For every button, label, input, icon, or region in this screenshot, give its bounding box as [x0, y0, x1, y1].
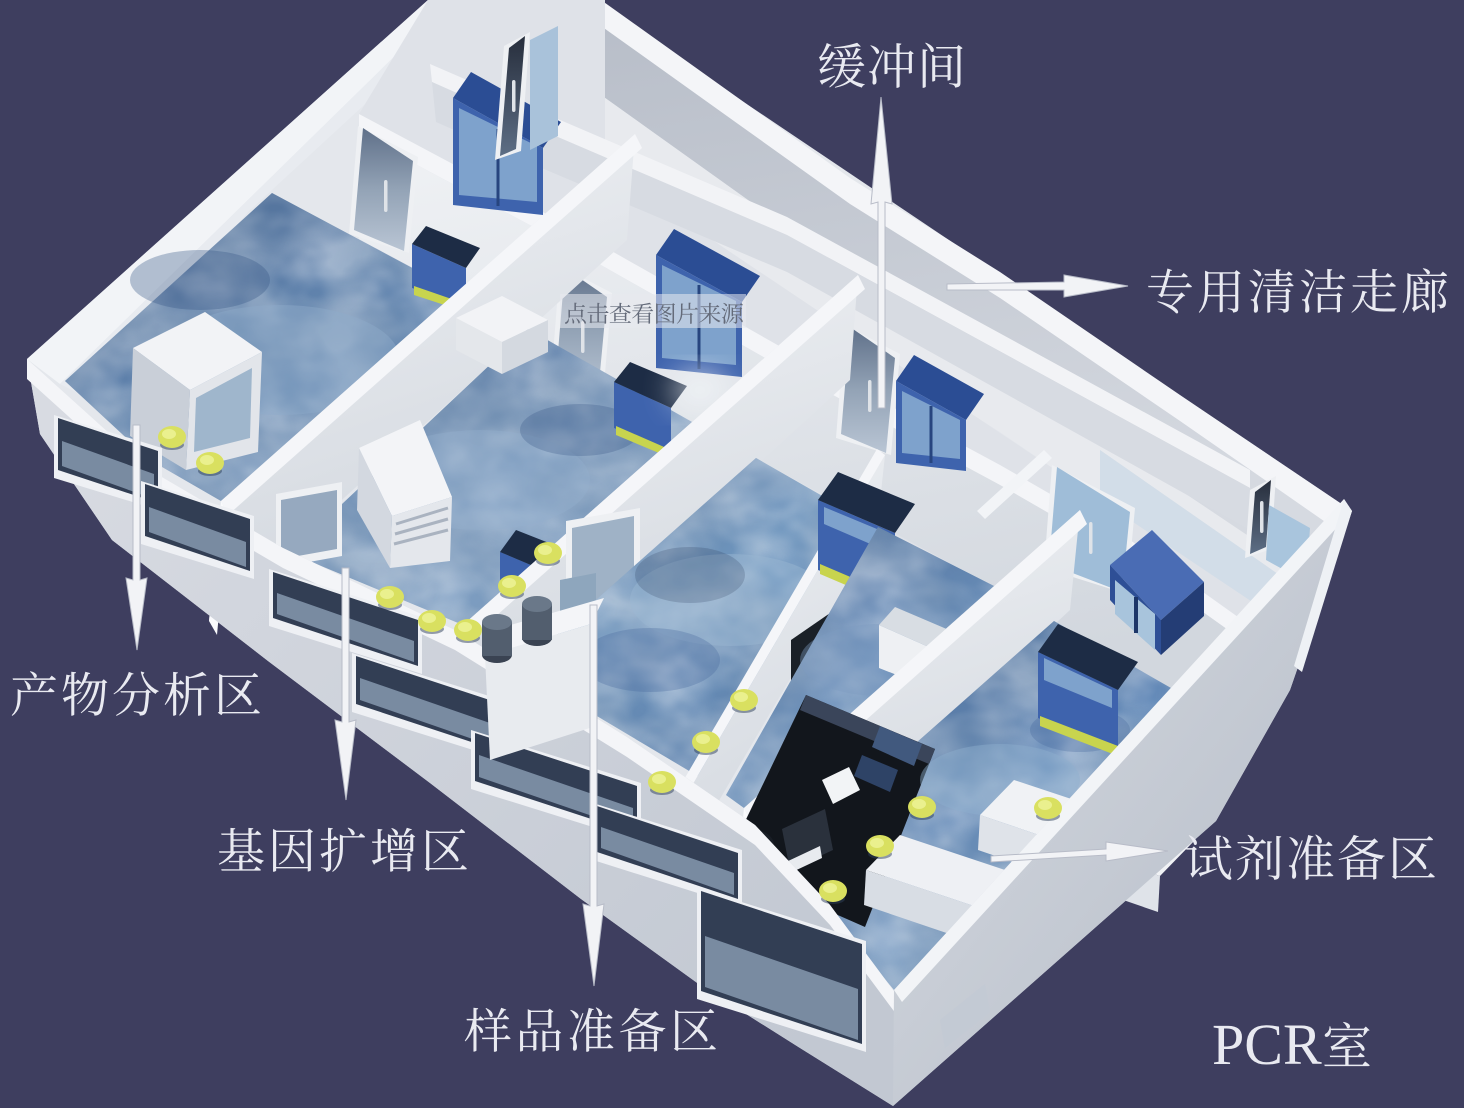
- svg-text:PCR: PCR: [1212, 1012, 1322, 1077]
